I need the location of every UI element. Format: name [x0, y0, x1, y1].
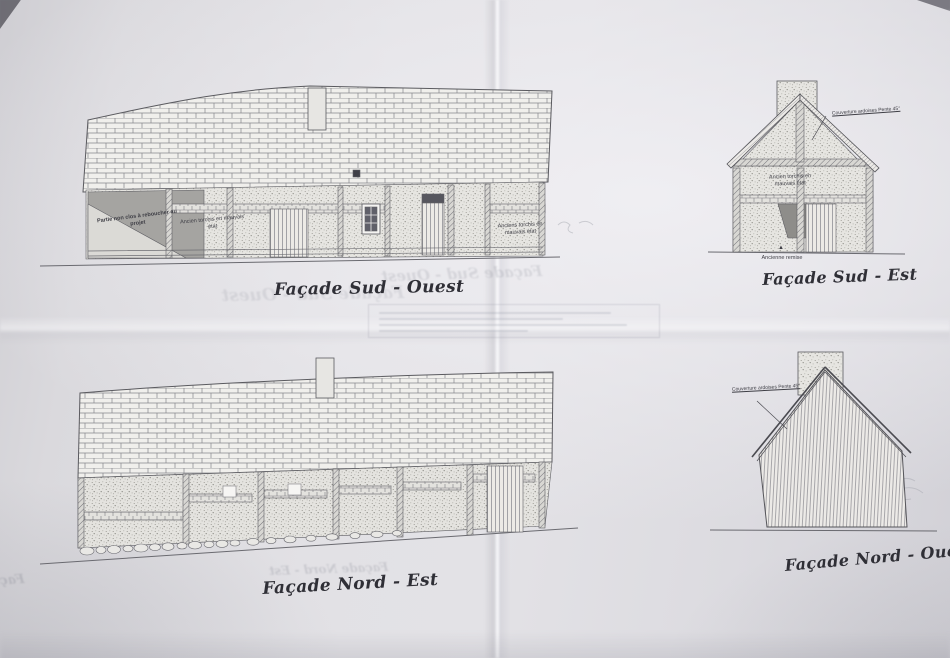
ne-roof: [78, 358, 553, 478]
sw-door-lintel: [422, 194, 444, 203]
ghost-text-nord-ouest: Façade Nord - Ouest: [0, 572, 25, 597]
sw-rail-band: [490, 204, 545, 213]
paper-bottom-shadow: [0, 632, 950, 658]
sw-window: [362, 204, 380, 234]
sw-roof: [83, 86, 552, 192]
facade-nord-ouest-drawing: [695, 345, 945, 545]
paper-corner-shadow-top-right: [905, 0, 950, 12]
scribble-mark: [558, 221, 593, 233]
ne-chimney: [316, 358, 334, 398]
sw-door-left: [270, 209, 308, 257]
ghost-note-line: [379, 330, 528, 333]
nw-ground: [710, 530, 937, 531]
paper-corner-shadow-top-left: [0, 0, 23, 33]
sw-chimney: [308, 88, 326, 130]
label-torchis-gable: Ancien torchis en mauvais état: [758, 173, 822, 189]
label-ancienne-remise: Ancienne remise: [752, 255, 812, 262]
facade-sud-est-drawing: [700, 58, 930, 278]
sw-vent: [353, 170, 360, 177]
ne-door: [487, 466, 523, 532]
ne-opening: [288, 484, 301, 495]
se-king-post: [796, 102, 804, 162]
se-ground: [708, 252, 905, 254]
ne-opening: [223, 486, 236, 497]
sw-door-right: [422, 203, 444, 255]
facade-nord-est-drawing: [35, 348, 580, 583]
ghost-note-line: [379, 318, 563, 321]
caption-facade-sud-ouest: Façade Sud - Ouest: [274, 277, 464, 300]
nw-gable-face: [759, 370, 907, 527]
architectural-plan-photo: Façade Sud - Ouest Façade Sud - Ouest Fa…: [0, 0, 950, 658]
remise-arrow-icon: ▲: [776, 245, 786, 253]
facade-sud-ouest-drawing: [38, 78, 562, 278]
se-door: [806, 204, 836, 252]
nw-label-leader-line: [757, 401, 787, 429]
